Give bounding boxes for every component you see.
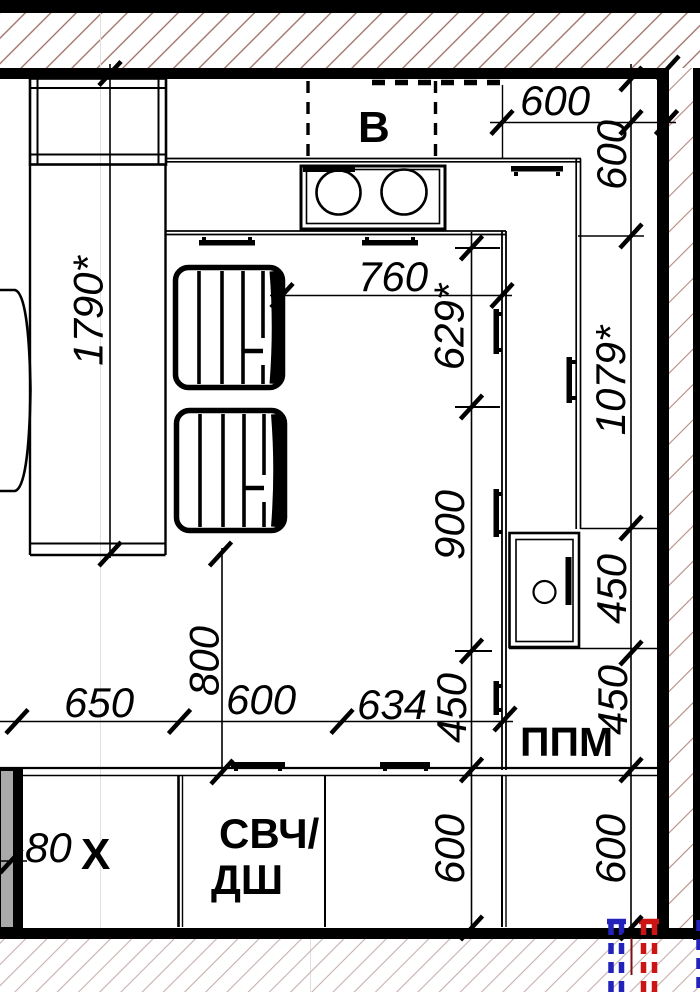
svg-text:800: 800: [181, 625, 228, 696]
svg-text:80: 80: [25, 824, 72, 871]
svg-text:650: 650: [64, 679, 135, 726]
svg-text:СВЧ/: СВЧ/: [219, 810, 320, 857]
svg-text:760: 760: [358, 253, 429, 300]
svg-text:1790*: 1790*: [65, 254, 112, 365]
svg-text:600: 600: [520, 77, 591, 124]
svg-text:600: 600: [587, 813, 634, 884]
svg-text:450: 450: [428, 672, 475, 743]
svg-text:450: 450: [588, 553, 635, 624]
svg-text:450: 450: [589, 664, 636, 735]
svg-text:600: 600: [426, 813, 473, 884]
svg-text:634: 634: [357, 681, 427, 728]
svg-text:1079*: 1079*: [587, 324, 634, 435]
svg-text:В: В: [358, 103, 390, 152]
svg-text:ДШ: ДШ: [211, 856, 283, 903]
svg-text:600: 600: [588, 119, 635, 190]
svg-text:900: 900: [426, 489, 473, 560]
svg-text:600: 600: [226, 676, 297, 723]
svg-text:X: X: [81, 830, 110, 879]
